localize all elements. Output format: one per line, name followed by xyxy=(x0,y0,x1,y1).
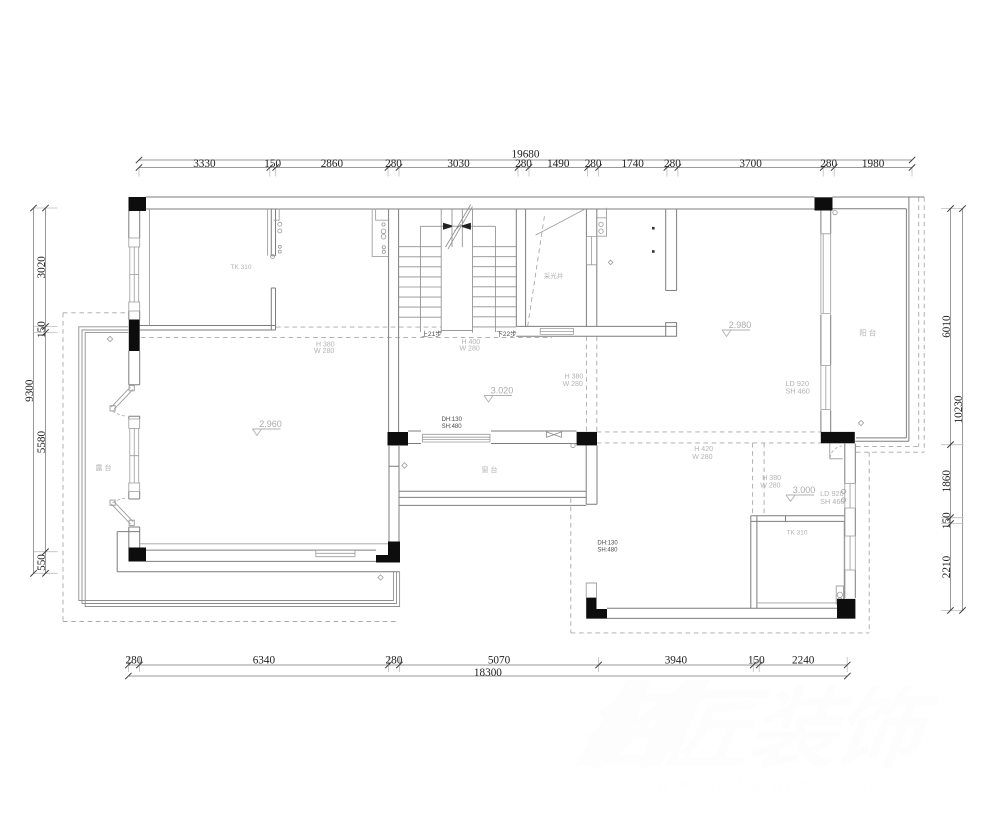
svg-text:1490: 1490 xyxy=(547,158,570,170)
svg-text:2860: 2860 xyxy=(321,158,344,170)
svg-text:1980: 1980 xyxy=(862,158,885,170)
svg-text:SH:480: SH:480 xyxy=(597,547,618,553)
svg-text:窗 台: 窗 台 xyxy=(482,465,498,474)
svg-text:3020: 3020 xyxy=(36,256,48,279)
svg-text:TK 310: TK 310 xyxy=(231,264,252,271)
svg-text:2240: 2240 xyxy=(792,654,815,666)
svg-text:上21步: 上21步 xyxy=(422,329,443,338)
svg-text:H 420: H 420 xyxy=(694,446,713,453)
svg-text:2.980: 2.980 xyxy=(729,320,752,330)
svg-text:150: 150 xyxy=(264,158,281,170)
svg-text:采光井: 采光井 xyxy=(544,271,564,280)
svg-text:DH:130: DH:130 xyxy=(597,541,618,547)
svg-text:3.000: 3.000 xyxy=(793,485,816,495)
svg-text:H 380: H 380 xyxy=(565,374,584,381)
svg-text:露 台: 露 台 xyxy=(96,463,112,472)
svg-text:W 280: W 280 xyxy=(563,381,583,388)
svg-text:150: 150 xyxy=(36,321,48,338)
svg-text:280: 280 xyxy=(126,654,143,666)
svg-text:W 280: W 280 xyxy=(314,348,334,355)
svg-text:280: 280 xyxy=(664,158,681,170)
svg-text:2.960: 2.960 xyxy=(259,419,282,429)
svg-text:6010: 6010 xyxy=(941,315,953,338)
svg-text:150: 150 xyxy=(941,512,953,529)
svg-text:10230: 10230 xyxy=(953,395,965,423)
svg-text:3030: 3030 xyxy=(447,158,470,170)
svg-text:下22步: 下22步 xyxy=(496,330,517,338)
svg-text:名匠装饰: 名匠装饰 xyxy=(573,680,943,779)
svg-text:280: 280 xyxy=(820,158,837,170)
svg-text:2210: 2210 xyxy=(941,555,953,578)
svg-text:1860: 1860 xyxy=(941,470,953,493)
svg-text:SH 460: SH 460 xyxy=(820,497,844,506)
svg-text:W 280: W 280 xyxy=(460,345,480,352)
svg-text:W 280: W 280 xyxy=(760,483,780,490)
svg-text:280: 280 xyxy=(585,158,602,170)
svg-text:5070: 5070 xyxy=(488,654,511,666)
svg-text:3940: 3940 xyxy=(665,654,688,666)
svg-text:280: 280 xyxy=(515,158,532,170)
svg-text:3330: 3330 xyxy=(193,158,216,170)
svg-text:150: 150 xyxy=(748,654,765,666)
svg-text:SH 460: SH 460 xyxy=(786,387,810,396)
svg-text:3.020: 3.020 xyxy=(491,386,514,396)
svg-text:550: 550 xyxy=(36,554,48,571)
svg-text:3700: 3700 xyxy=(739,158,762,170)
svg-text:9300: 9300 xyxy=(24,379,36,402)
svg-text:TK 310: TK 310 xyxy=(787,530,808,537)
svg-text:SH:480: SH:480 xyxy=(442,424,463,430)
svg-text:H 380: H 380 xyxy=(762,475,781,482)
svg-text:5580: 5580 xyxy=(36,431,48,454)
svg-text:280: 280 xyxy=(386,654,403,666)
svg-text:18300: 18300 xyxy=(474,667,502,679)
svg-text:阳 台: 阳 台 xyxy=(859,328,876,338)
svg-text:280: 280 xyxy=(385,158,402,170)
svg-text:6340: 6340 xyxy=(253,654,276,666)
svg-text:1740: 1740 xyxy=(622,158,645,170)
svg-text:DH:130: DH:130 xyxy=(442,417,463,423)
svg-text:MINGJIANG DECORATION: MINGJIANG DECORATION xyxy=(658,779,897,793)
svg-text:W 280: W 280 xyxy=(692,454,712,461)
